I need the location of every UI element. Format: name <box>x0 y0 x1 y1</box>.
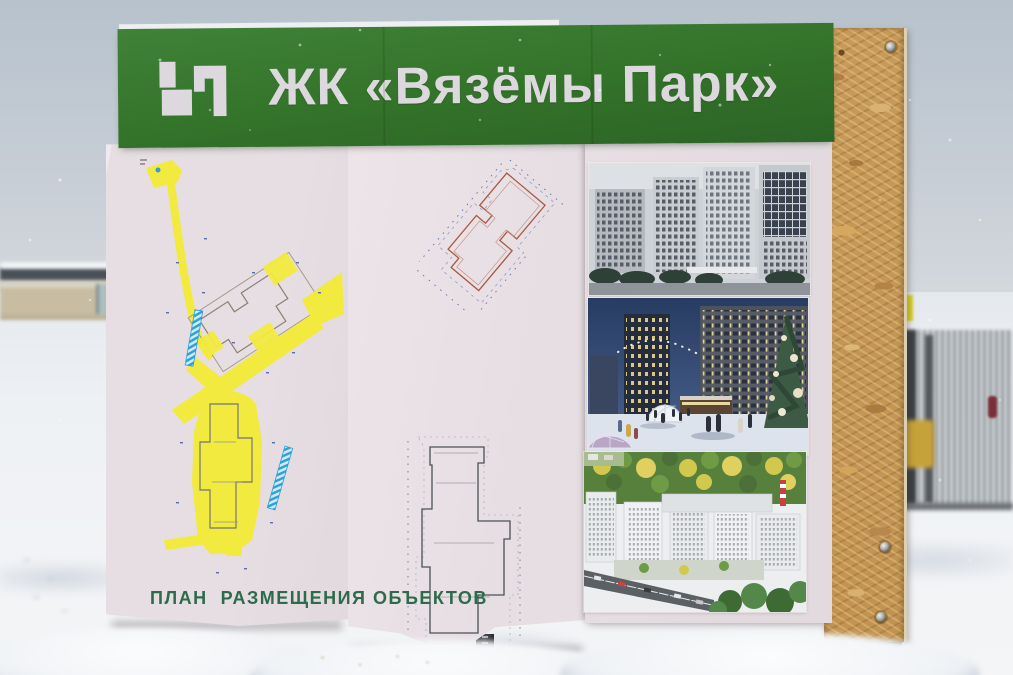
render1-road <box>589 283 810 295</box>
site-plan-sheet <box>106 142 348 628</box>
footprint-plans-sheet <box>348 141 585 655</box>
plan-caption: ПЛАН РАЗМЕЩЕНИЯ ОБЪЕКТОВ <box>150 588 488 609</box>
developer-logo <box>158 60 230 117</box>
fence-base-line <box>896 503 1013 510</box>
logo-hook-shape <box>194 66 227 117</box>
render-aerial-complex <box>584 452 806 612</box>
render1-tower-center <box>703 167 755 279</box>
logo-small-square <box>159 62 175 88</box>
render-winter-evening-plaza <box>588 298 808 455</box>
header-banner: ЖК «Вязёмы Парк» <box>117 23 834 148</box>
worker-figure <box>988 396 997 418</box>
render1-tower-right-glass <box>759 165 810 279</box>
dirt-specks <box>300 648 450 672</box>
fence-post <box>925 335 933 503</box>
osb-backing-panel <box>824 28 907 642</box>
screw-icon <box>876 612 886 622</box>
render2-far-tower <box>590 356 618 418</box>
screw-icon <box>880 542 890 552</box>
photograph-of-billboard: ЖК «Вязёмы Парк» ПЛАН РАЗМЕЩЕНИЯ ОБЪЕКТО… <box>0 0 1013 675</box>
render-daytime-towers <box>589 163 810 295</box>
mast-stripe <box>780 494 786 498</box>
mast-stripe <box>780 484 786 488</box>
render1-tower-far-left <box>595 189 645 273</box>
render1-tower-mid <box>653 177 699 275</box>
render3-courtyard <box>614 560 764 580</box>
screw-icon <box>886 42 896 52</box>
logo-big-square <box>162 90 192 116</box>
render1-entrance-canopy <box>687 267 757 273</box>
render3-striped-mast <box>780 480 786 506</box>
